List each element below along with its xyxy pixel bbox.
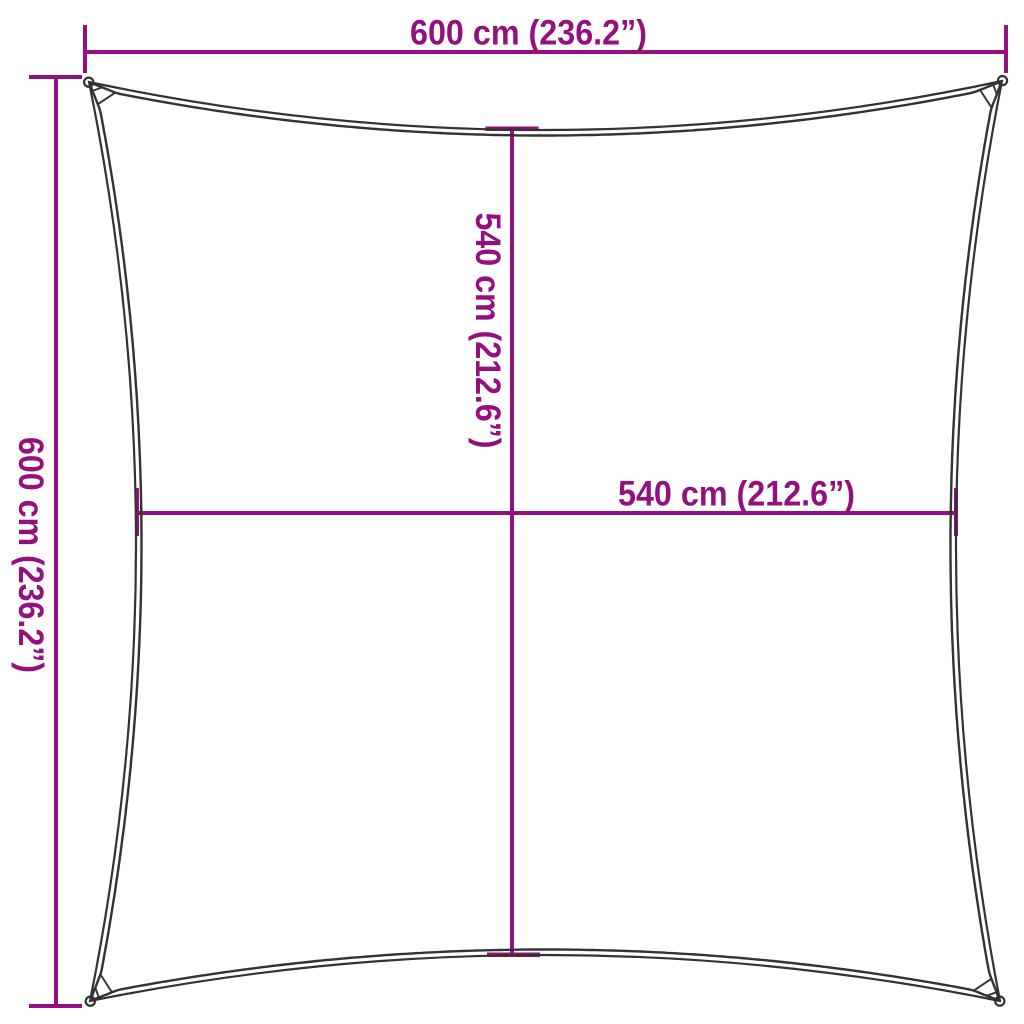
svg-text:600 cm (236.2”): 600 cm (236.2”) bbox=[410, 13, 647, 52]
svg-text:540 cm (212.6”): 540 cm (212.6”) bbox=[618, 474, 855, 513]
svg-text:600 cm (236.2”): 600 cm (236.2”) bbox=[11, 437, 50, 673]
svg-text:540 cm (212.6”): 540 cm (212.6”) bbox=[468, 213, 507, 449]
